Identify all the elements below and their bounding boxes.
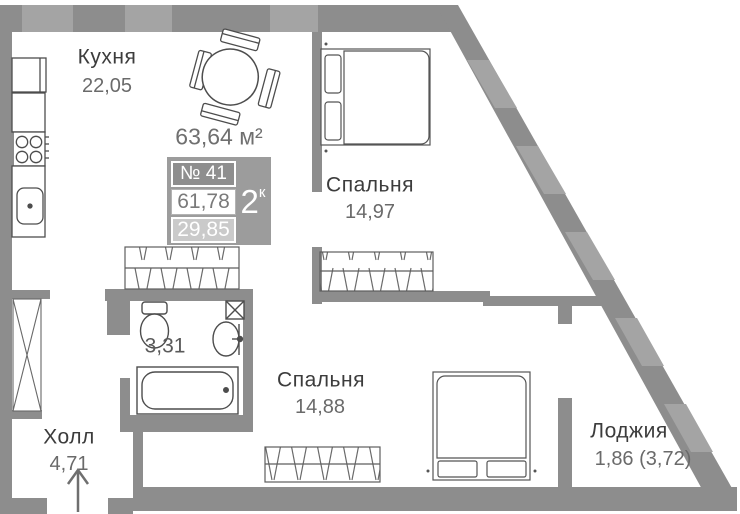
wardrobe-icon-bedroom1: [320, 252, 433, 291]
kitchen-area-label: 22,05: [82, 76, 132, 96]
wall-loggia: [558, 398, 572, 487]
wall-bath-top: [105, 289, 253, 301]
unit-area-main: 61,78: [171, 189, 236, 215]
bedroom2-name-label: Спальня: [277, 370, 365, 391]
wall-bath-right: [243, 301, 253, 432]
floor-plan: Кухня 22,05 63,64 м² Спальня 14,97 3,31 …: [0, 0, 740, 514]
window-diag-2: [516, 146, 566, 194]
bathroom-sink-icon: [213, 322, 243, 356]
unit-badge[interactable]: № 41 61,78 29,85 2к: [167, 157, 271, 245]
wall-hall-right: [133, 420, 143, 500]
kitchen-sink-icon: [12, 166, 45, 237]
hall-name-label: Холл: [43, 427, 95, 448]
kitchen-cabinet-icon: [12, 93, 45, 132]
wardrobe-icon-kitchen: [125, 247, 239, 289]
total-area-label: 63,64 м²: [175, 126, 262, 149]
bedroom1-name-label: Спальня: [326, 175, 414, 196]
entrance-arrow-icon: [68, 470, 88, 512]
loggia-name-label: Лоджия: [590, 421, 667, 442]
unit-rooms-number: 2: [241, 185, 259, 218]
wardrobes: [125, 247, 433, 482]
wardrobe-icon-bedroom2: [265, 447, 380, 482]
wall-bedroom1-bottom: [312, 291, 490, 302]
window-diag-3: [565, 232, 615, 280]
wall-left: [0, 5, 12, 514]
loggia-area-label: 1,86 (3,72): [595, 449, 692, 469]
unit-area-secondary: 29,85: [171, 217, 236, 243]
dining-table-icon: [183, 24, 287, 133]
wall-shaft-top: [12, 290, 50, 299]
bathroom-area-label: 3,31: [145, 336, 186, 357]
hall-area-label: 4,71: [50, 454, 89, 474]
wall-bedroom1-bottom-step: [483, 296, 618, 306]
bedroom2-area-label: 14,88: [295, 397, 345, 417]
wall-bottom-hall-left: [0, 498, 47, 514]
wall-bottom-hall-right: [108, 498, 133, 514]
bedroom1-area-label: 14,97: [345, 202, 395, 222]
unit-number: № 41: [171, 161, 236, 187]
window-top-2: [125, 5, 172, 32]
wall-bath-left-upper: [107, 301, 130, 335]
fridge-icon: [12, 58, 46, 92]
shaft-icon: [13, 299, 41, 411]
bathtub-icon: [137, 367, 238, 414]
window-top-1: [22, 5, 73, 32]
bathroom-fixtures: [137, 301, 244, 414]
bed-icon-2: [427, 372, 537, 480]
unit-badge-left-column: № 41 61,78 29,85: [171, 161, 236, 241]
bed-icon: [321, 43, 430, 153]
wall-bottom-main: [133, 487, 737, 511]
kitchen-appliances: [12, 58, 49, 237]
window-diag-1: [467, 60, 517, 108]
stove-icon: [13, 132, 49, 166]
window-top-3: [270, 5, 318, 32]
kitchen-name-label: Кухня: [78, 47, 137, 68]
wall-loggia-stub: [558, 306, 572, 324]
washing-machine-icon: [226, 301, 244, 319]
wall-bath-left-lower: [120, 378, 130, 415]
unit-rooms-count: 2к: [239, 161, 267, 241]
unit-rooms-suffix: к: [259, 185, 266, 200]
